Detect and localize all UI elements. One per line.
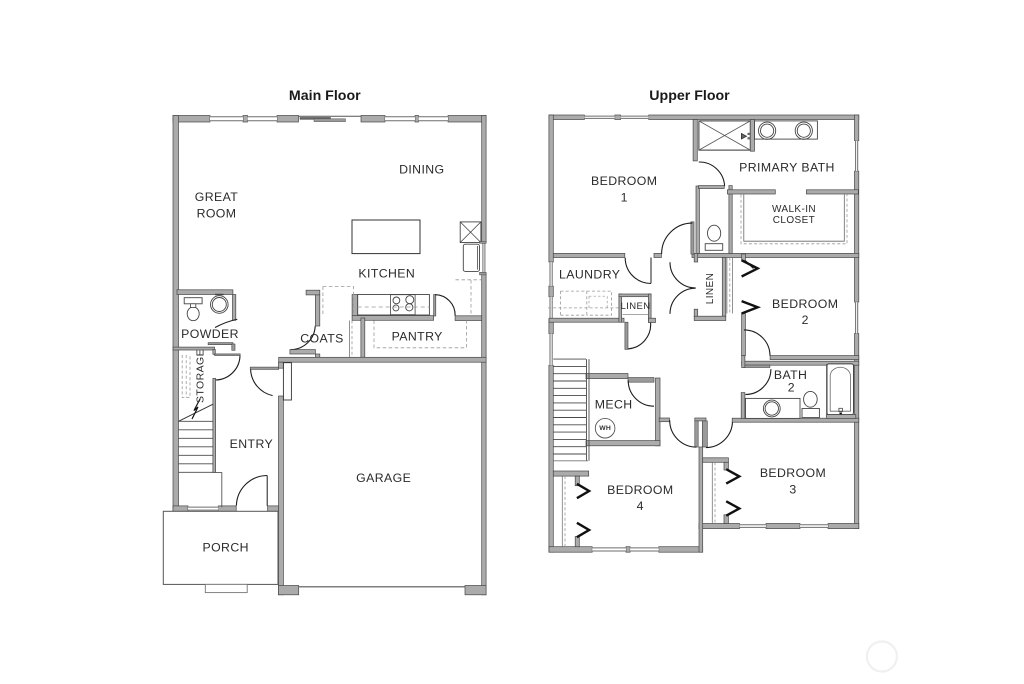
svg-text:WALK-IN: WALK-IN <box>772 204 816 215</box>
svg-text:2: 2 <box>788 380 795 394</box>
svg-text:2: 2 <box>802 313 809 327</box>
svg-text:POWDER: POWDER <box>181 327 239 341</box>
svg-text:1: 1 <box>621 191 628 205</box>
svg-text:GARAGE: GARAGE <box>356 471 411 485</box>
svg-text:MECH: MECH <box>595 398 633 412</box>
svg-text:PANTRY: PANTRY <box>392 330 443 344</box>
svg-text:BEDROOM: BEDROOM <box>591 174 657 188</box>
svg-text:BEDROOM: BEDROOM <box>760 466 826 480</box>
svg-text:LAUNDRY: LAUNDRY <box>559 267 620 281</box>
svg-text:LINEN: LINEN <box>621 301 651 312</box>
svg-text:Upper Floor: Upper Floor <box>649 88 730 104</box>
svg-text:PRIMARY BATH: PRIMARY BATH <box>739 161 835 175</box>
svg-text:COATS: COATS <box>300 332 343 346</box>
svg-text:STORAGE: STORAGE <box>195 349 207 403</box>
svg-text:DINING: DINING <box>399 162 444 176</box>
svg-text:LINEN: LINEN <box>705 273 716 304</box>
svg-text:KITCHEN: KITCHEN <box>358 266 415 280</box>
svg-text:ROOM: ROOM <box>197 206 237 220</box>
svg-text:GREAT: GREAT <box>195 190 239 204</box>
svg-text:PORCH: PORCH <box>202 541 248 555</box>
svg-text:3: 3 <box>789 483 796 497</box>
svg-text:Main Floor: Main Floor <box>289 88 361 104</box>
svg-text:CLOSET: CLOSET <box>773 215 815 226</box>
svg-text:ENTRY: ENTRY <box>230 437 273 451</box>
svg-text:4: 4 <box>637 499 644 513</box>
svg-text:BEDROOM: BEDROOM <box>772 297 838 311</box>
svg-text:WH: WH <box>599 425 611 432</box>
svg-text:BEDROOM: BEDROOM <box>607 483 673 497</box>
